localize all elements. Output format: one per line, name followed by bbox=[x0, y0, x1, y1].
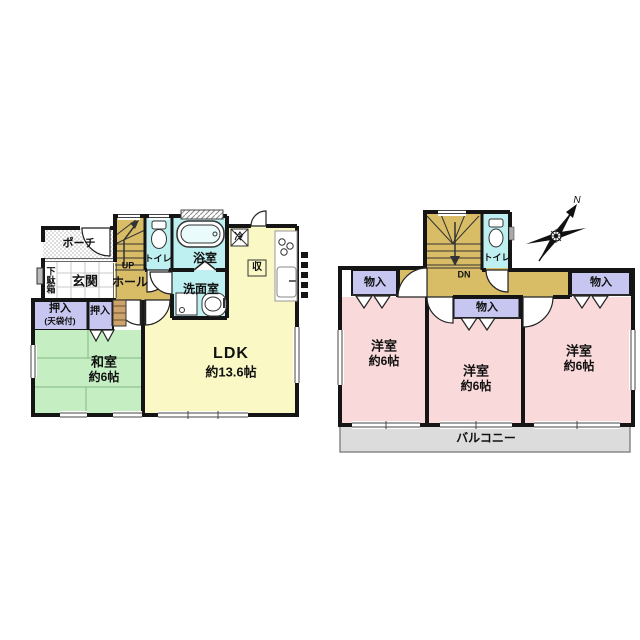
meter-box bbox=[37, 268, 43, 284]
label-1f-japanese-room-size: 約6帖 bbox=[89, 371, 120, 383]
floor2-plan bbox=[336, 208, 637, 452]
compass-icon bbox=[526, 204, 586, 261]
kitchen-counter bbox=[275, 231, 297, 301]
label-2f-room-left-size: 約6帖 bbox=[369, 355, 400, 367]
floor-plan-graphics bbox=[0, 0, 640, 640]
label-2f-room-right-size: 約6帖 bbox=[564, 360, 595, 372]
label-1f-washroom: 洗面室 bbox=[183, 283, 219, 295]
label-2f-room-center-size: 約6帖 bbox=[461, 380, 492, 392]
label-compass-north: N bbox=[573, 196, 580, 206]
label-1f-refrigerator: 冷 bbox=[234, 233, 243, 242]
label-2f-room-center: 洋室 bbox=[463, 365, 489, 378]
label-1f-up: UP bbox=[122, 262, 135, 271]
label-1f-storage: 収 bbox=[252, 263, 262, 273]
corner-shelf bbox=[113, 300, 126, 326]
label-1f-closet-main-note: (天袋付) bbox=[44, 317, 75, 326]
label-2f-room-left: 洋室 bbox=[371, 340, 397, 353]
kitchen-back-door-arc bbox=[251, 211, 266, 226]
label-2f-storage-left: 物入 bbox=[364, 278, 386, 289]
label-1f-hall: ホール bbox=[112, 276, 148, 288]
label-2f-storage-right: 物入 bbox=[590, 278, 612, 289]
washbasin-icon bbox=[202, 293, 226, 316]
label-1f-bath: 浴室 bbox=[193, 252, 217, 264]
toilet-icon-1f bbox=[152, 221, 167, 249]
label-2f-balcony: バルコニー bbox=[456, 432, 516, 444]
label-1f-closet-main: 押入 bbox=[49, 304, 71, 315]
floor-plan-canvas: ポーチ 玄関 下駄箱 UP ホール トイレ 浴室 洗面室 冷 収 押入 (天袋付… bbox=[0, 0, 640, 640]
label-2f-room-right: 洋室 bbox=[566, 345, 592, 358]
label-1f-porch: ポーチ bbox=[63, 239, 96, 250]
kitchen-sink-icon bbox=[277, 267, 296, 297]
label-1f-japanese-room: 和室 bbox=[91, 356, 117, 369]
shutter-teeth bbox=[301, 252, 308, 298]
washing-machine-icon bbox=[176, 293, 197, 315]
label-1f-closet-small: 押入 bbox=[90, 307, 110, 317]
label-1f-ldk: LDK bbox=[213, 346, 249, 362]
label-2f-toilet: トイレ bbox=[483, 254, 510, 263]
bathtub-icon bbox=[177, 221, 224, 247]
bath-window-hatched bbox=[181, 210, 223, 219]
label-1f-entrance: 玄関 bbox=[72, 275, 98, 288]
label-2f-storage-center: 物入 bbox=[476, 303, 498, 314]
label-1f-toilet: トイレ bbox=[144, 255, 171, 264]
label-1f-shoe-cabinet: 下駄箱 bbox=[46, 267, 55, 294]
label-2f-dn: DN bbox=[458, 271, 471, 280]
label-1f-ldk-size: 約13.6帖 bbox=[205, 366, 256, 379]
